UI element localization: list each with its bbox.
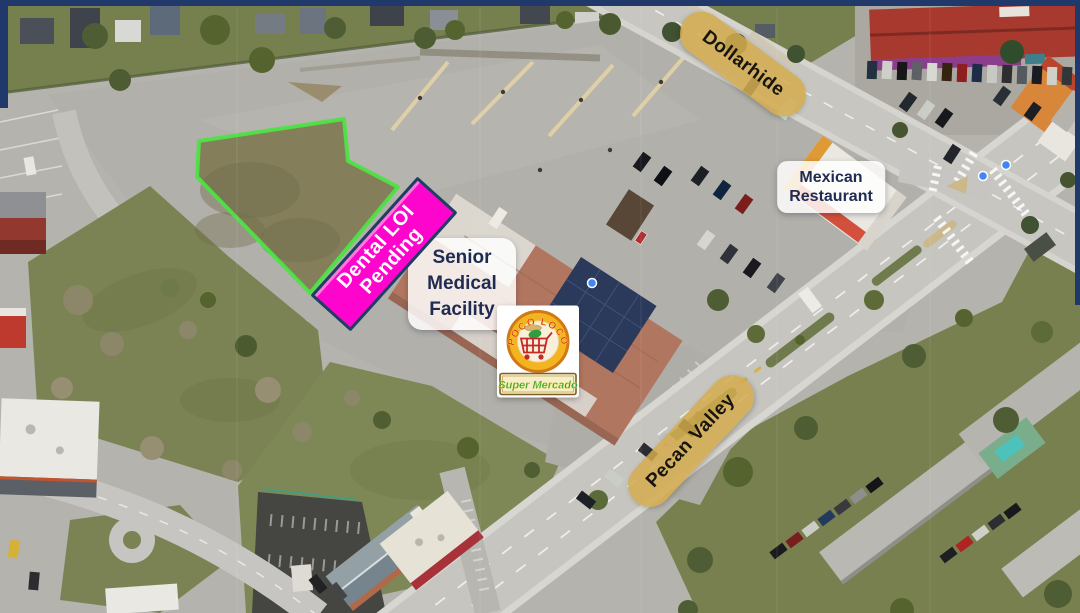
slide-frame-left [0,0,8,108]
mexican-restaurant-line2: Restaurant [789,187,873,206]
bottom-left-building [0,398,100,497]
logo-banner-text: Super Mercado [498,380,578,392]
street-view-marker [979,172,988,181]
slide-frame-top [0,0,1080,6]
street-view-marker [1002,161,1011,170]
slide-frame-right [1075,0,1080,305]
aerial-site-map: Dollarhide Pecan Valley Mexican Restaura… [0,0,1080,613]
mexican-restaurant-label: Mexican Restaurant [777,161,885,213]
poco-loco-logo: POCO LOCO Super Mercado [497,306,579,403]
mexican-restaurant-line1: Mexican [789,168,873,187]
street-view-marker [588,279,597,288]
senior-medical-line2: Medical [412,271,512,297]
senior-medical-line1: Senior [412,245,512,271]
